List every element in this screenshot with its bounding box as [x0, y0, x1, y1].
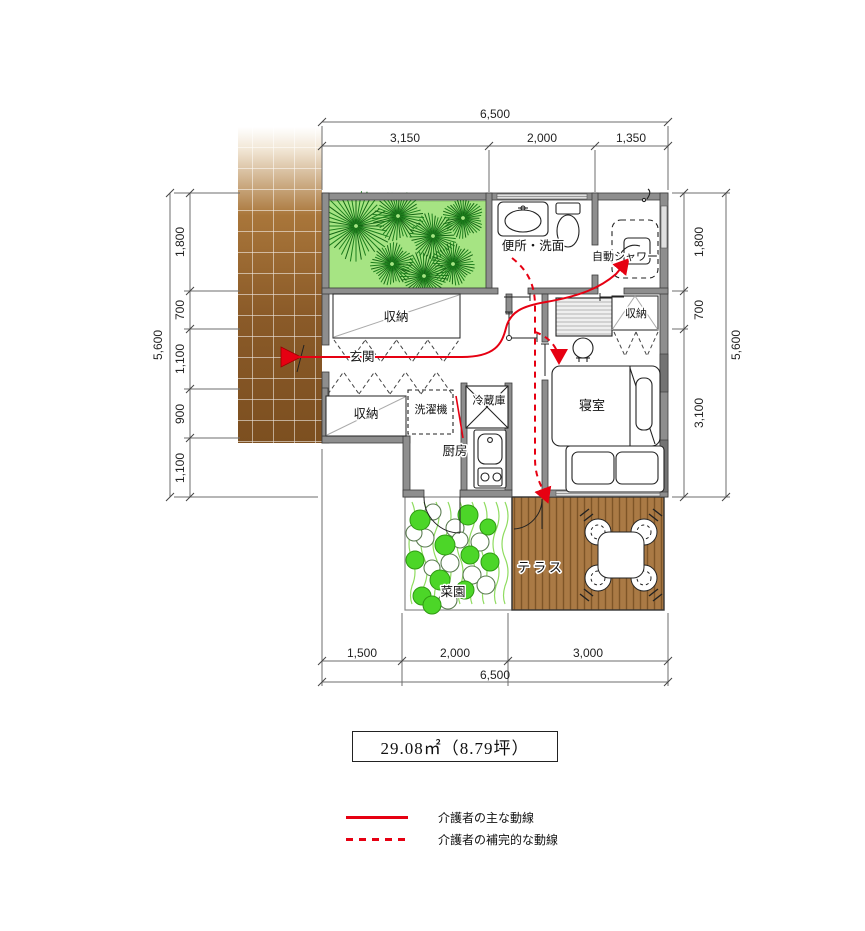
crop-icon [461, 546, 479, 564]
floor-plan-drawing: 6,500 3,150 2,000 1,350 1,500 2,000 3,00… [0, 0, 865, 931]
dim-left-seg-1: 1,800 [173, 227, 187, 257]
dim-right-seg-3: 3,100 [692, 398, 706, 428]
dim-right-seg-1: 1,800 [692, 227, 706, 257]
dim-top-seg-3: 1,350 [616, 131, 646, 145]
kitchen-counter-icon [474, 430, 506, 488]
dim-top-seg-1: 3,150 [390, 131, 420, 145]
crop-icon [410, 510, 430, 530]
dim-left-seg-4: 900 [173, 404, 187, 424]
legend-main-label: 介護者の主な動線 [438, 809, 534, 826]
crop-icon [406, 551, 424, 569]
dim-left-seg-5: 1,100 [173, 453, 187, 483]
dim-right-seg-2: 700 [692, 300, 706, 320]
label-toilet-washroom: 便所・洗面 [502, 239, 565, 253]
supplementary-flow-swatch [346, 838, 408, 841]
crop-icon [480, 519, 496, 535]
crop-icon [458, 505, 478, 525]
legend-supplementary-row: 介護者の補完的な動線 [346, 828, 646, 850]
floor-area-label: 29.08㎡（8.79坪） [352, 731, 558, 762]
refrigerator-icon [466, 386, 508, 428]
main-flow-swatch [346, 816, 408, 819]
terrace-area [512, 497, 664, 610]
label-kitchen: 厨房 [442, 443, 467, 458]
flow-legend: 介護者の主な動線 介護者の補完的な動線 [346, 806, 646, 850]
chair-icon [573, 338, 593, 362]
crop-outline-icon [477, 576, 495, 594]
label-auto-shower: 自動シャワー [592, 249, 658, 263]
label-entrance: 玄関 [349, 349, 374, 364]
dim-bottom-seg-3: 3,000 [573, 646, 603, 660]
label-vegetable-garden: 菜園 [440, 585, 465, 599]
floor-plan-page: 6,500 3,150 2,000 1,350 1,500 2,000 3,00… [0, 0, 865, 931]
dim-bottom-total: 6,500 [480, 668, 510, 682]
label-terrace: テラス [517, 560, 565, 575]
label-washer: 洗濯機 [415, 402, 448, 416]
sofa-icon [566, 446, 664, 492]
label-fridge: 冷蔵庫 [473, 393, 506, 407]
label-bedroom: 寝室 [579, 398, 605, 413]
crop-outline-icon [441, 554, 459, 572]
dim-bottom-seg-2: 2,000 [440, 646, 470, 660]
crop-icon [481, 553, 499, 571]
bed-icon [552, 366, 660, 446]
label-storage-top: 収納 [383, 310, 408, 324]
legend-main-row: 介護者の主な動線 [346, 806, 646, 828]
dim-top-total: 6,500 [480, 107, 510, 121]
dim-bottom-seg-1: 1,500 [347, 646, 377, 660]
label-storage-bedroom: 収納 [625, 307, 647, 320]
approach-path [238, 127, 322, 443]
shower-unit-icon [612, 189, 658, 278]
dim-left-total: 5,600 [151, 330, 165, 360]
dim-left-seg-3: 1,100 [173, 344, 187, 374]
label-storage-left: 収納 [353, 407, 378, 421]
dim-left-seg-2: 700 [173, 300, 187, 320]
desk-icon [556, 298, 612, 336]
crop-icon [435, 535, 455, 555]
sink-icon [498, 202, 548, 236]
entrance-garden [322, 191, 486, 299]
legend-supplementary-label: 介護者の補完的な動線 [438, 831, 558, 848]
dim-right-total: 5,600 [729, 330, 743, 360]
dim-top-seg-2: 2,000 [527, 131, 557, 145]
crop-icon [423, 596, 441, 614]
